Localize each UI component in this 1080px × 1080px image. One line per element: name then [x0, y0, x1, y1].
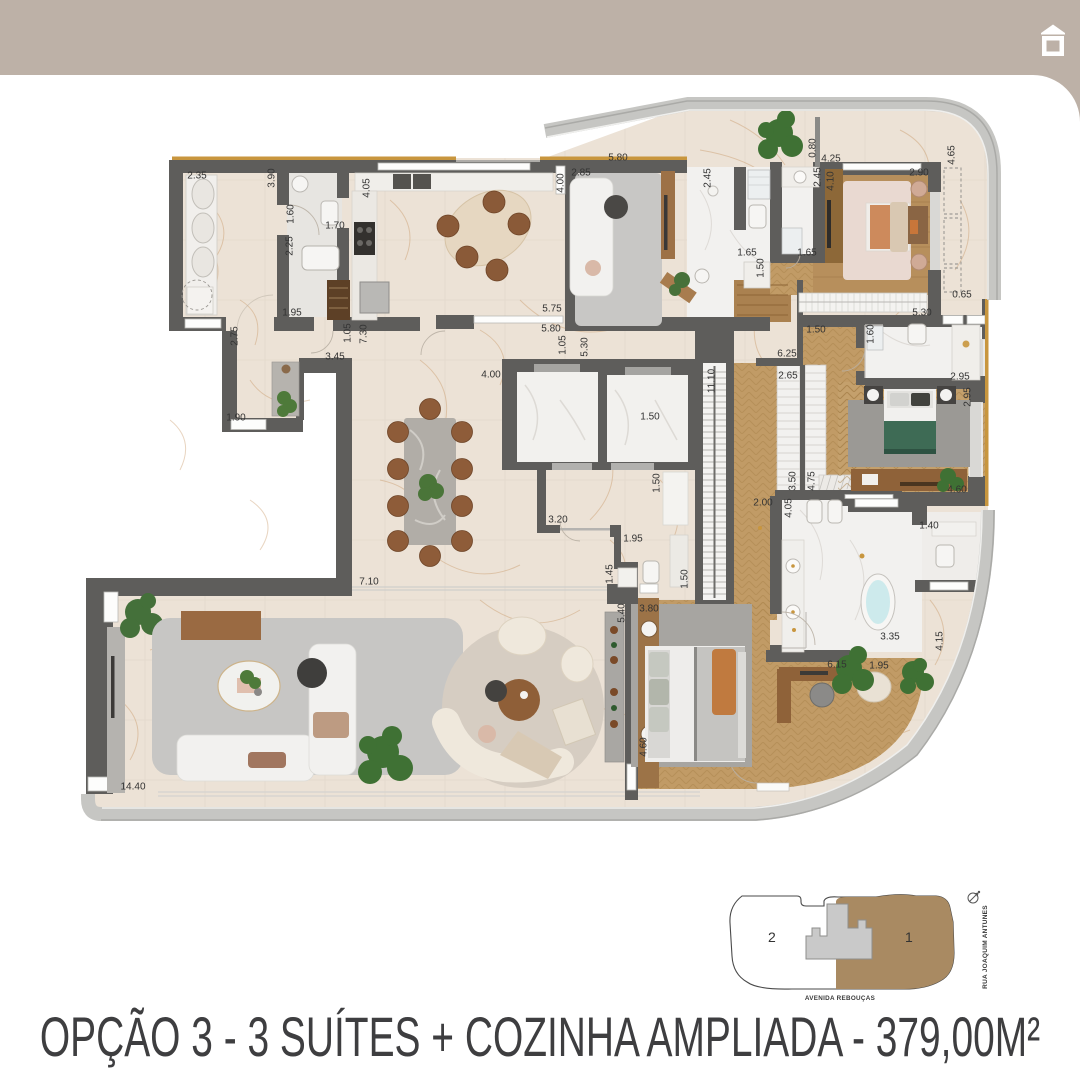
svg-text:5.80: 5.80 — [541, 324, 561, 335]
svg-text:2.25: 2.25 — [285, 236, 296, 256]
svg-text:5.75: 5.75 — [542, 304, 562, 315]
svg-text:4.00: 4.00 — [556, 173, 567, 193]
svg-text:6.15: 6.15 — [827, 660, 847, 671]
svg-text:4.25: 4.25 — [821, 154, 841, 165]
svg-text:1.05: 1.05 — [343, 323, 354, 343]
svg-text:2.75: 2.75 — [230, 326, 241, 346]
svg-text:7.10: 7.10 — [359, 577, 379, 588]
svg-text:1.70: 1.70 — [325, 221, 345, 232]
svg-text:3.45: 3.45 — [325, 352, 345, 363]
svg-text:2.90: 2.90 — [909, 168, 929, 179]
svg-text:3.80: 3.80 — [639, 604, 659, 615]
svg-text:4.60: 4.60 — [947, 485, 967, 496]
svg-text:6.25: 6.25 — [777, 349, 797, 360]
svg-text:3.35: 3.35 — [880, 632, 900, 643]
svg-text:5.30: 5.30 — [580, 337, 591, 357]
svg-text:5.40: 5.40 — [617, 603, 628, 623]
svg-text:1.05: 1.05 — [558, 335, 569, 355]
svg-text:2: 2 — [768, 929, 776, 945]
svg-text:2.45: 2.45 — [703, 168, 714, 188]
svg-text:1.60: 1.60 — [286, 204, 297, 224]
svg-text:5.30: 5.30 — [912, 308, 932, 319]
svg-text:1.50: 1.50 — [652, 473, 663, 493]
svg-text:4.15: 4.15 — [935, 631, 946, 651]
svg-text:2.35: 2.35 — [187, 171, 207, 182]
svg-text:1.95: 1.95 — [282, 308, 302, 319]
svg-text:2.85: 2.85 — [571, 168, 591, 179]
svg-text:11.10: 11.10 — [707, 368, 718, 393]
svg-text:4.05: 4.05 — [362, 178, 373, 198]
svg-text:4.00: 4.00 — [481, 370, 501, 381]
svg-text:1.65: 1.65 — [737, 248, 757, 259]
svg-text:1.50: 1.50 — [806, 325, 826, 336]
svg-text:3.20: 3.20 — [548, 515, 568, 526]
svg-text:14.40: 14.40 — [120, 782, 145, 793]
svg-text:1.60: 1.60 — [866, 324, 877, 344]
svg-text:4.60: 4.60 — [639, 737, 650, 757]
svg-text:1.50: 1.50 — [680, 569, 691, 589]
svg-text:7.30: 7.30 — [359, 324, 370, 344]
svg-text:4.65: 4.65 — [947, 145, 958, 165]
svg-text:1.65: 1.65 — [797, 248, 817, 259]
svg-text:1.40: 1.40 — [919, 521, 939, 532]
svg-text:2.65: 2.65 — [778, 371, 798, 382]
svg-text:2.00: 2.00 — [753, 498, 773, 509]
svg-text:3.50: 3.50 — [788, 471, 799, 491]
svg-text:RUA JOAQUIM ANTUNES: RUA JOAQUIM ANTUNES — [982, 905, 989, 989]
svg-text:4.75: 4.75 — [807, 471, 818, 491]
svg-text:AVENIDA REBOUÇAS: AVENIDA REBOUÇAS — [805, 995, 875, 1002]
svg-text:1.50: 1.50 — [640, 412, 660, 423]
svg-text:5.80: 5.80 — [608, 153, 628, 164]
svg-text:2.95: 2.95 — [950, 372, 970, 383]
svg-text:1.90: 1.90 — [226, 413, 246, 424]
svg-text:4.10: 4.10 — [826, 171, 837, 191]
svg-text:4.05: 4.05 — [784, 498, 795, 518]
svg-text:1: 1 — [905, 929, 913, 945]
svg-text:3.90: 3.90 — [267, 168, 278, 188]
svg-text:1.50: 1.50 — [756, 258, 767, 278]
svg-text:2.95: 2.95 — [963, 387, 974, 407]
svg-text:OPÇÃO 3 - 3 SUÍTES + COZINHA A: OPÇÃO 3 - 3 SUÍTES + COZINHA AMPLIADA - … — [40, 1006, 1040, 1069]
svg-text:1.95: 1.95 — [869, 661, 889, 672]
svg-text:0.80: 0.80 — [808, 138, 819, 158]
svg-text:0.65: 0.65 — [952, 290, 972, 301]
svg-text:1.45: 1.45 — [605, 564, 616, 584]
svg-text:1.95: 1.95 — [623, 534, 643, 545]
svg-text:2.45: 2.45 — [813, 167, 824, 187]
